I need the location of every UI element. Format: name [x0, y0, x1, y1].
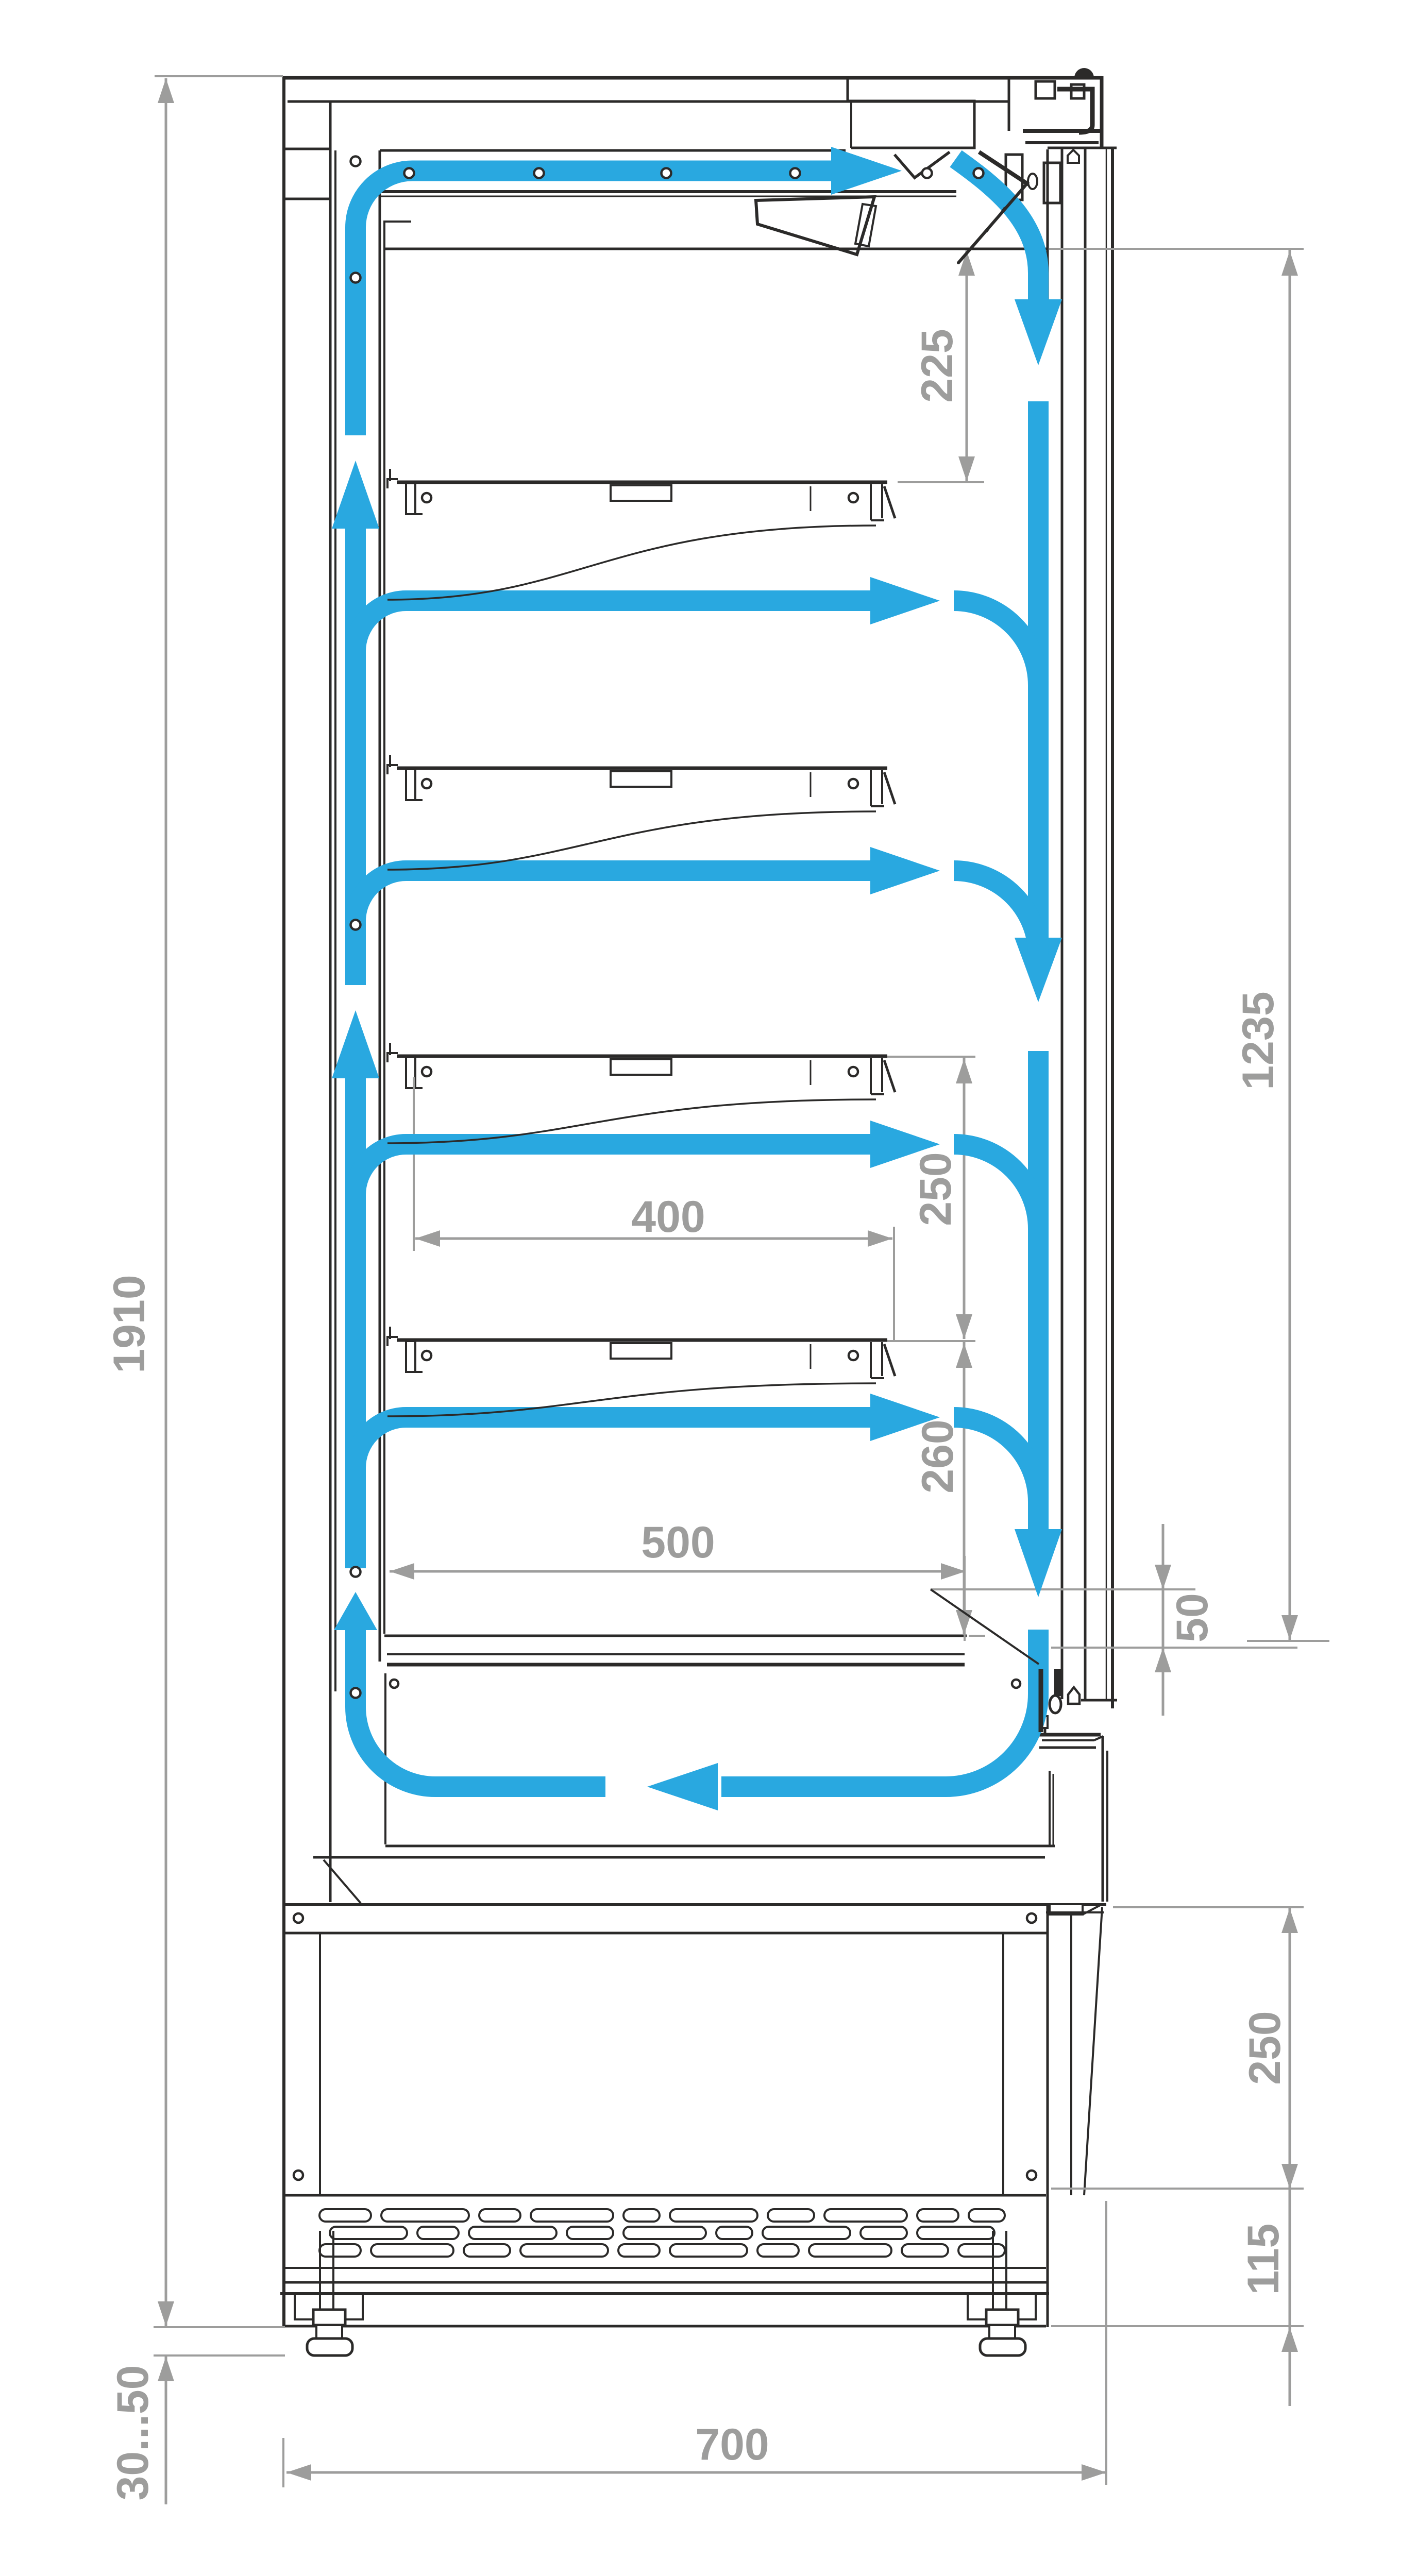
svg-text:30...50: 30...50 [108, 2365, 158, 2501]
svg-text:500: 500 [641, 1518, 715, 1567]
svg-text:115: 115 [1239, 2224, 1288, 2295]
svg-text:1910: 1910 [105, 1275, 154, 1373]
svg-text:1235: 1235 [1234, 991, 1283, 1090]
svg-text:250: 250 [911, 1152, 960, 1226]
svg-text:50: 50 [1168, 1593, 1217, 1642]
svg-text:225: 225 [913, 329, 962, 403]
svg-text:260: 260 [913, 1419, 963, 1494]
svg-text:250: 250 [1240, 2011, 1290, 2085]
svg-text:400: 400 [631, 1192, 705, 1242]
svg-text:700: 700 [695, 2420, 769, 2469]
